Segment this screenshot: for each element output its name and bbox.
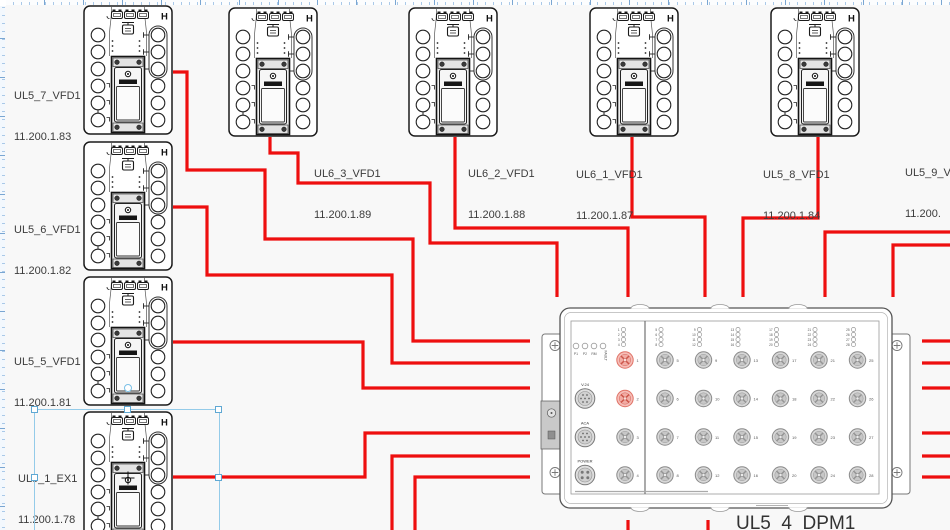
- selection-handle-top-left[interactable]: [31, 406, 38, 413]
- svg-text:17: 17: [769, 328, 773, 332]
- device-name: UL5_6_VFD1: [14, 224, 81, 238]
- svg-text:17: 17: [792, 358, 797, 363]
- svg-text:26: 26: [846, 333, 850, 337]
- svg-text:8: 8: [655, 343, 657, 347]
- svg-text:3: 3: [618, 338, 620, 342]
- svg-text:25: 25: [869, 358, 874, 363]
- svg-text:26: 26: [869, 396, 874, 401]
- svg-text:28: 28: [869, 473, 874, 478]
- svg-text:V.24: V.24: [581, 382, 590, 387]
- svg-text:ACA: ACA: [581, 421, 590, 426]
- selection-handle-top-right[interactable]: [215, 406, 222, 413]
- svg-text:9: 9: [694, 328, 696, 332]
- device-name: UL6_1_VFD1: [576, 169, 643, 183]
- svg-text:10: 10: [692, 333, 696, 337]
- svg-text:15: 15: [754, 435, 759, 440]
- device-ip: 11.200.1.89: [314, 209, 381, 223]
- svg-text:11: 11: [692, 338, 696, 342]
- svg-text:12: 12: [692, 343, 696, 347]
- svg-text:16: 16: [731, 343, 735, 347]
- ruler-corner: [0, 0, 6, 6]
- svg-text:28: 28: [846, 343, 850, 347]
- svg-text:16: 16: [754, 473, 759, 478]
- svg-text:1: 1: [618, 328, 620, 332]
- device-ul5-8-vfd1[interactable]: [771, 8, 859, 136]
- svg-text:15: 15: [731, 338, 735, 342]
- device-ul6-2-vfd1[interactable]: [409, 8, 497, 136]
- device-name: UL5_5_VFD1: [14, 356, 81, 370]
- svg-text:13: 13: [731, 328, 735, 332]
- svg-text:POWER: POWER: [577, 459, 592, 464]
- svg-text:20: 20: [792, 473, 797, 478]
- dpm-led-label-rm: RM: [591, 352, 596, 356]
- svg-text:27: 27: [869, 435, 874, 440]
- device-ip: 11.200.1.81: [14, 397, 81, 411]
- svg-text:24: 24: [831, 473, 836, 478]
- device-ul5-4-dpm1[interactable]: 1122334455667788991010111112121313141415…: [530, 297, 922, 520]
- device-label-ul6-1: UL6_1_VFD1 11.200.1.87: [576, 142, 643, 250]
- svg-text:27: 27: [846, 338, 850, 342]
- svg-text:22: 22: [808, 333, 812, 337]
- svg-text:19: 19: [792, 435, 797, 440]
- selection-handle-middle-left[interactable]: [31, 474, 38, 481]
- svg-text:4: 4: [618, 343, 620, 347]
- connection-point-dot[interactable]: [124, 384, 132, 392]
- ruler-vertical: [0, 0, 5, 530]
- svg-text:6: 6: [655, 333, 657, 337]
- device-ip: 11.200.1.87: [576, 210, 643, 224]
- device-name: UL5_7_VFD1: [14, 90, 81, 104]
- svg-text:10: 10: [715, 396, 720, 401]
- device-label-ul6-2: UL6_2_VFD1 11.200.1.88: [468, 141, 535, 249]
- device-name: UL5_8_VFD1: [763, 169, 830, 183]
- svg-text:18: 18: [769, 333, 773, 337]
- device-label-ul6-3: UL6_3_VFD1 11.200.1.89: [314, 141, 381, 249]
- selection-handle-top-middle[interactable]: [124, 406, 131, 413]
- svg-text:13: 13: [754, 358, 759, 363]
- device-label-ul5-4-dpm1: UL5_4_DPM1: [736, 513, 855, 530]
- svg-text:20: 20: [769, 343, 773, 347]
- dpm-led-label-fault: FAULT: [604, 351, 608, 361]
- ruler-horizontal: [6, 0, 950, 5]
- diagram-canvas[interactable]: H: [0, 0, 950, 530]
- device-label-ul5-7: UL5_7_VFD1 11.200.1.83: [14, 63, 81, 171]
- device-ul5-6-vfd1[interactable]: [84, 142, 172, 270]
- device-name: UL6_2_VFD1: [468, 168, 535, 182]
- selection-rectangle: [34, 409, 220, 530]
- svg-text:21: 21: [808, 328, 812, 332]
- device-ip: 11.200.1.82: [14, 265, 81, 279]
- svg-text:14: 14: [731, 333, 735, 337]
- svg-text:21: 21: [831, 358, 836, 363]
- svg-text:25: 25: [846, 328, 850, 332]
- svg-text:23: 23: [831, 435, 836, 440]
- dpm-led-label-p1: P1: [574, 352, 578, 356]
- dpm-din-clip: [541, 401, 562, 449]
- svg-text:19: 19: [769, 338, 773, 342]
- device-ul6-1-vfd1[interactable]: [590, 8, 678, 136]
- device-ul6-3-vfd1[interactable]: [229, 8, 317, 136]
- svg-text:22: 22: [831, 396, 836, 401]
- cable-ul6_1-dpm[interactable]: [632, 137, 705, 297]
- svg-text:14: 14: [754, 396, 759, 401]
- device-label-ul5-6: UL5_6_VFD1 11.200.1.82: [14, 197, 81, 305]
- device-ip: 11.200.1.88: [468, 209, 535, 223]
- device-ip: 11.200.: [905, 208, 950, 222]
- svg-text:12: 12: [715, 473, 720, 478]
- device-name: UL6_3_VFD1: [314, 168, 381, 182]
- svg-text:23: 23: [808, 338, 812, 342]
- svg-text:2: 2: [618, 333, 620, 337]
- device-ul5-7-vfd1[interactable]: [84, 6, 172, 134]
- svg-text:5: 5: [655, 328, 657, 332]
- device-label-ul5-9: UL5_9_V 11.200.: [905, 140, 950, 248]
- device-ip: 11.200.1.83: [14, 131, 81, 145]
- selection-handle-middle-right[interactable]: [215, 474, 222, 481]
- svg-text:18: 18: [792, 396, 797, 401]
- dpm-led-label-p2: P2: [583, 352, 587, 356]
- svg-text:7: 7: [655, 338, 657, 342]
- device-name: UL5_9_V: [905, 167, 950, 181]
- dpm-connector-power[interactable]: POWER: [575, 459, 595, 485]
- svg-text:24: 24: [808, 343, 812, 347]
- cable-right-b-dpm[interactable]: [893, 245, 950, 297]
- device-ip: 11.200.1.84: [763, 210, 830, 224]
- device-label-ul5-8: UL5_8_VFD1 11.200.1.84: [763, 142, 830, 250]
- dpm-panel: [571, 321, 879, 494]
